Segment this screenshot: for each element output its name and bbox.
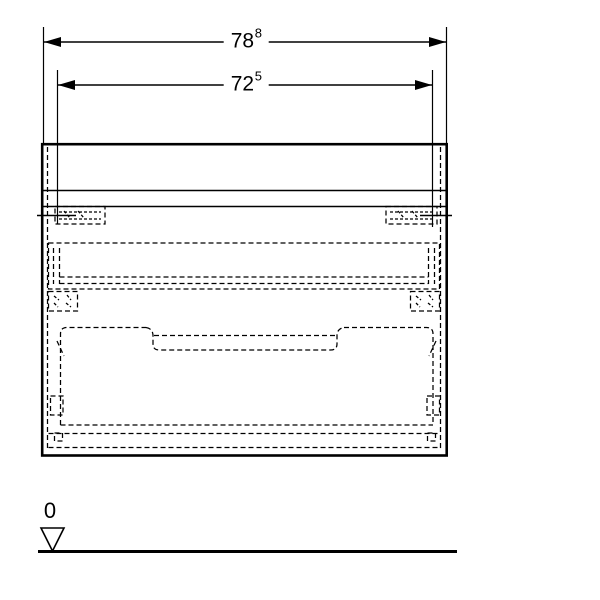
technical-drawing-canvas: 788 725 0 xyxy=(0,0,600,600)
outer-width-dimension-label: 788 xyxy=(224,31,269,52)
extension-lines xyxy=(44,27,447,227)
bracket-hardware-marks xyxy=(59,211,432,219)
inner-width-value: 72 xyxy=(231,73,254,96)
arrowhead-right-icon xyxy=(429,37,446,47)
foot-clip-left xyxy=(55,433,63,441)
inner-width-superscript: 5 xyxy=(255,69,262,84)
lower-drawer-front-left xyxy=(61,328,147,426)
datum-zero-label: 0 xyxy=(44,500,56,522)
glide-fitting-left xyxy=(49,292,78,312)
upper-drawer-box xyxy=(49,243,440,289)
hidden-lines xyxy=(48,147,442,448)
arrowhead-right-icon xyxy=(415,80,432,90)
glide-hardware-marks xyxy=(54,295,433,307)
handle-recess xyxy=(146,328,344,351)
cabinet-drawing xyxy=(0,0,600,600)
outer-width-value: 78 xyxy=(231,30,254,53)
glide-fitting-right xyxy=(411,292,440,312)
foot-clip-right xyxy=(428,433,436,441)
outer-width-superscript: 8 xyxy=(255,26,262,41)
cabinet-outline xyxy=(37,144,452,455)
inner-width-dimension-label: 725 xyxy=(224,74,269,95)
floor-datum xyxy=(38,528,457,552)
arrowhead-left-icon xyxy=(44,37,61,47)
datum-triangle-icon xyxy=(41,528,64,551)
lower-drawer-front-right xyxy=(344,328,433,426)
arrowhead-left-icon xyxy=(58,80,75,90)
